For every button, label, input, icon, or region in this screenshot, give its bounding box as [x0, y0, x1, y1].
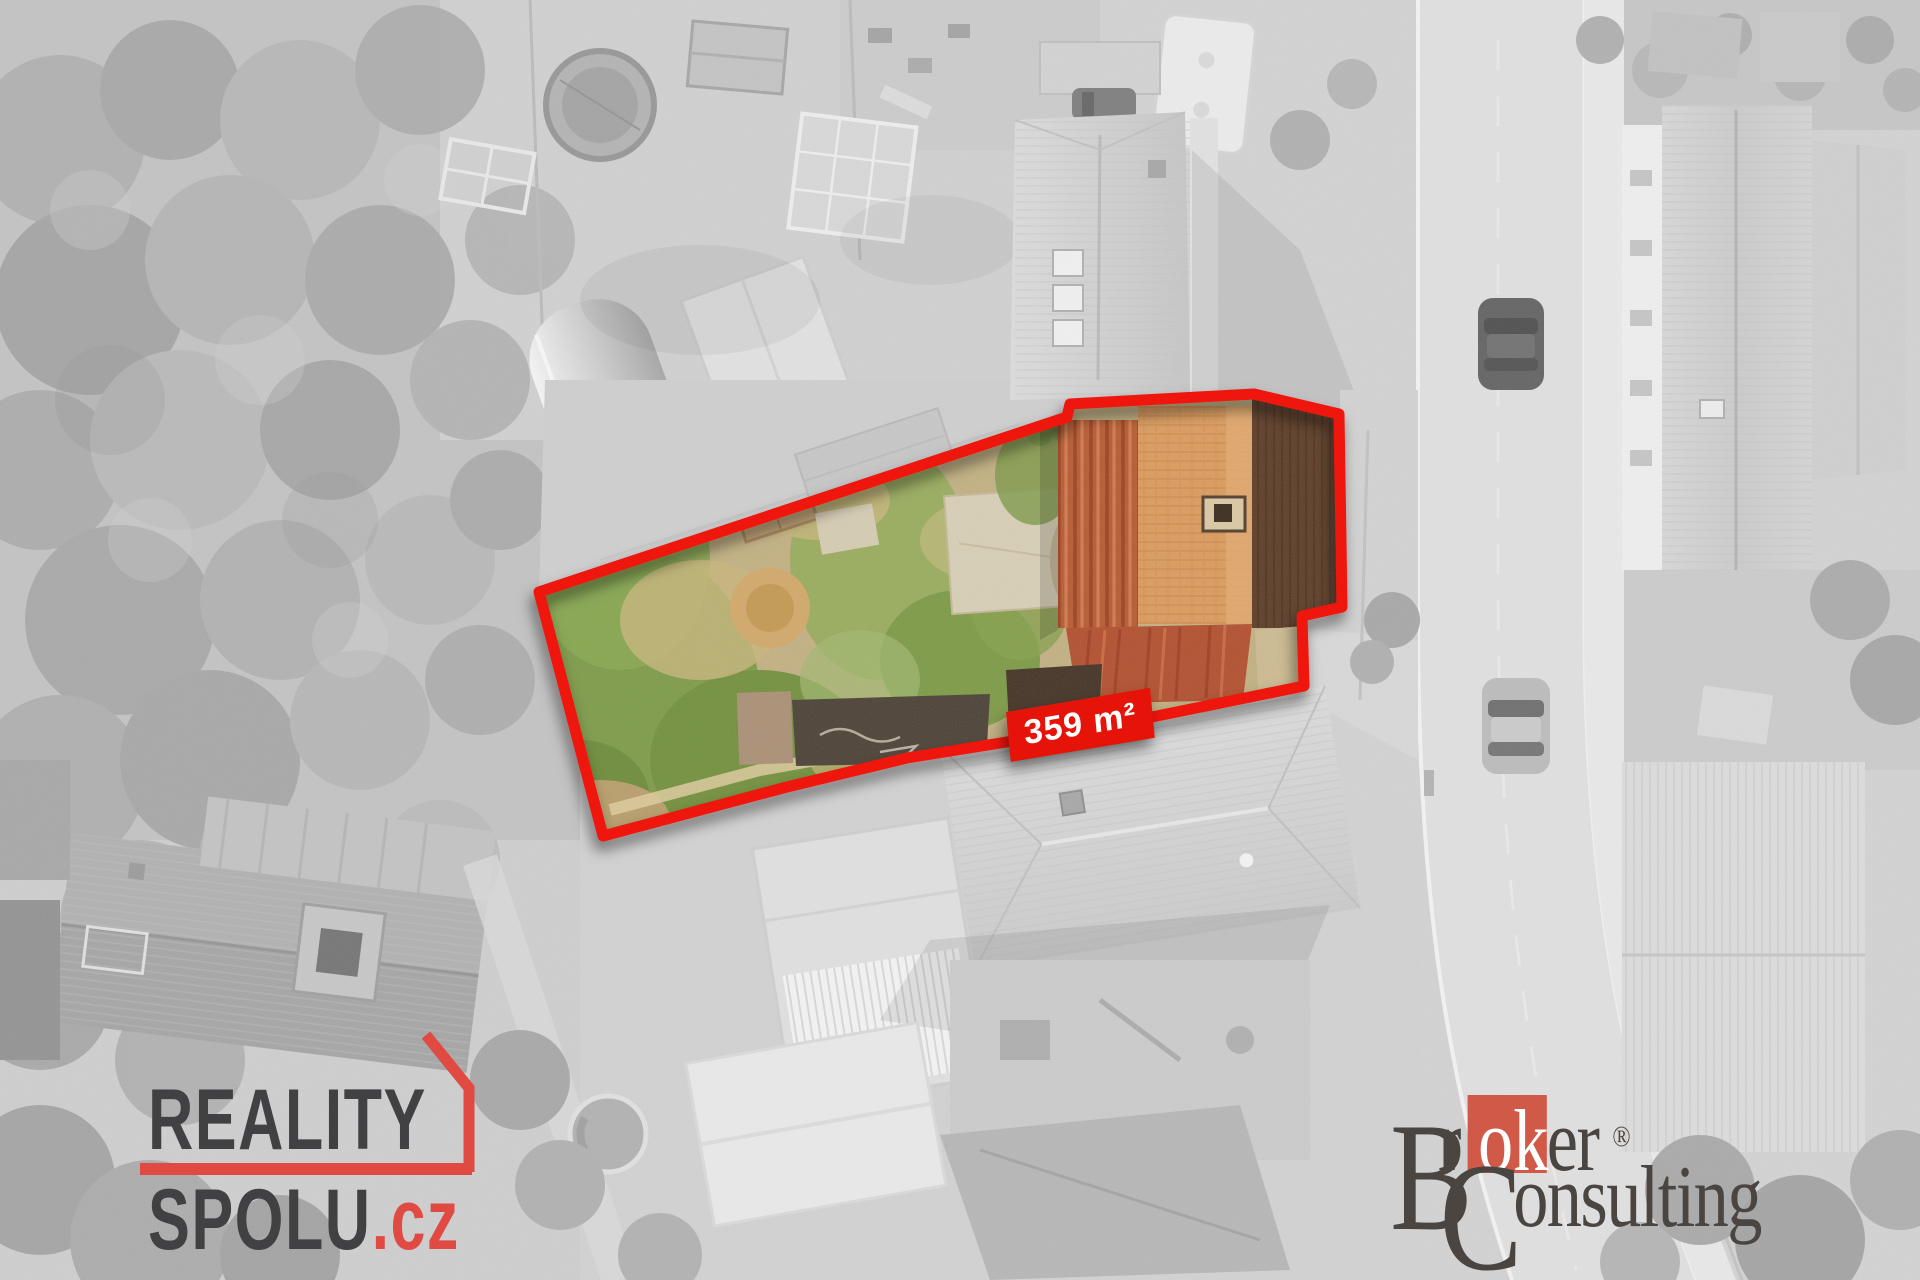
reality-spolu-line2: SPOLU.cz — [148, 1177, 460, 1263]
consulting-capital-c: C — [1440, 1140, 1523, 1280]
consulting-rest: onsulting — [1513, 1154, 1761, 1242]
broker-consulting-logo: B r ok er ® C onsulting — [1382, 1080, 1830, 1280]
real-estate-aerial-photo: 359 m² REALITY SPOLU.cz B r ok er ® C on… — [0, 0, 1920, 1280]
reality-spolu-line2-text: SPOLU — [148, 1172, 372, 1268]
reality-spolu-suffix: .cz — [372, 1172, 460, 1268]
reality-spolu-roof-icon — [410, 1025, 490, 1185]
reality-spolu-line1: REALITY — [148, 1077, 427, 1163]
registered-trademark-icon: ® — [1612, 1122, 1630, 1152]
